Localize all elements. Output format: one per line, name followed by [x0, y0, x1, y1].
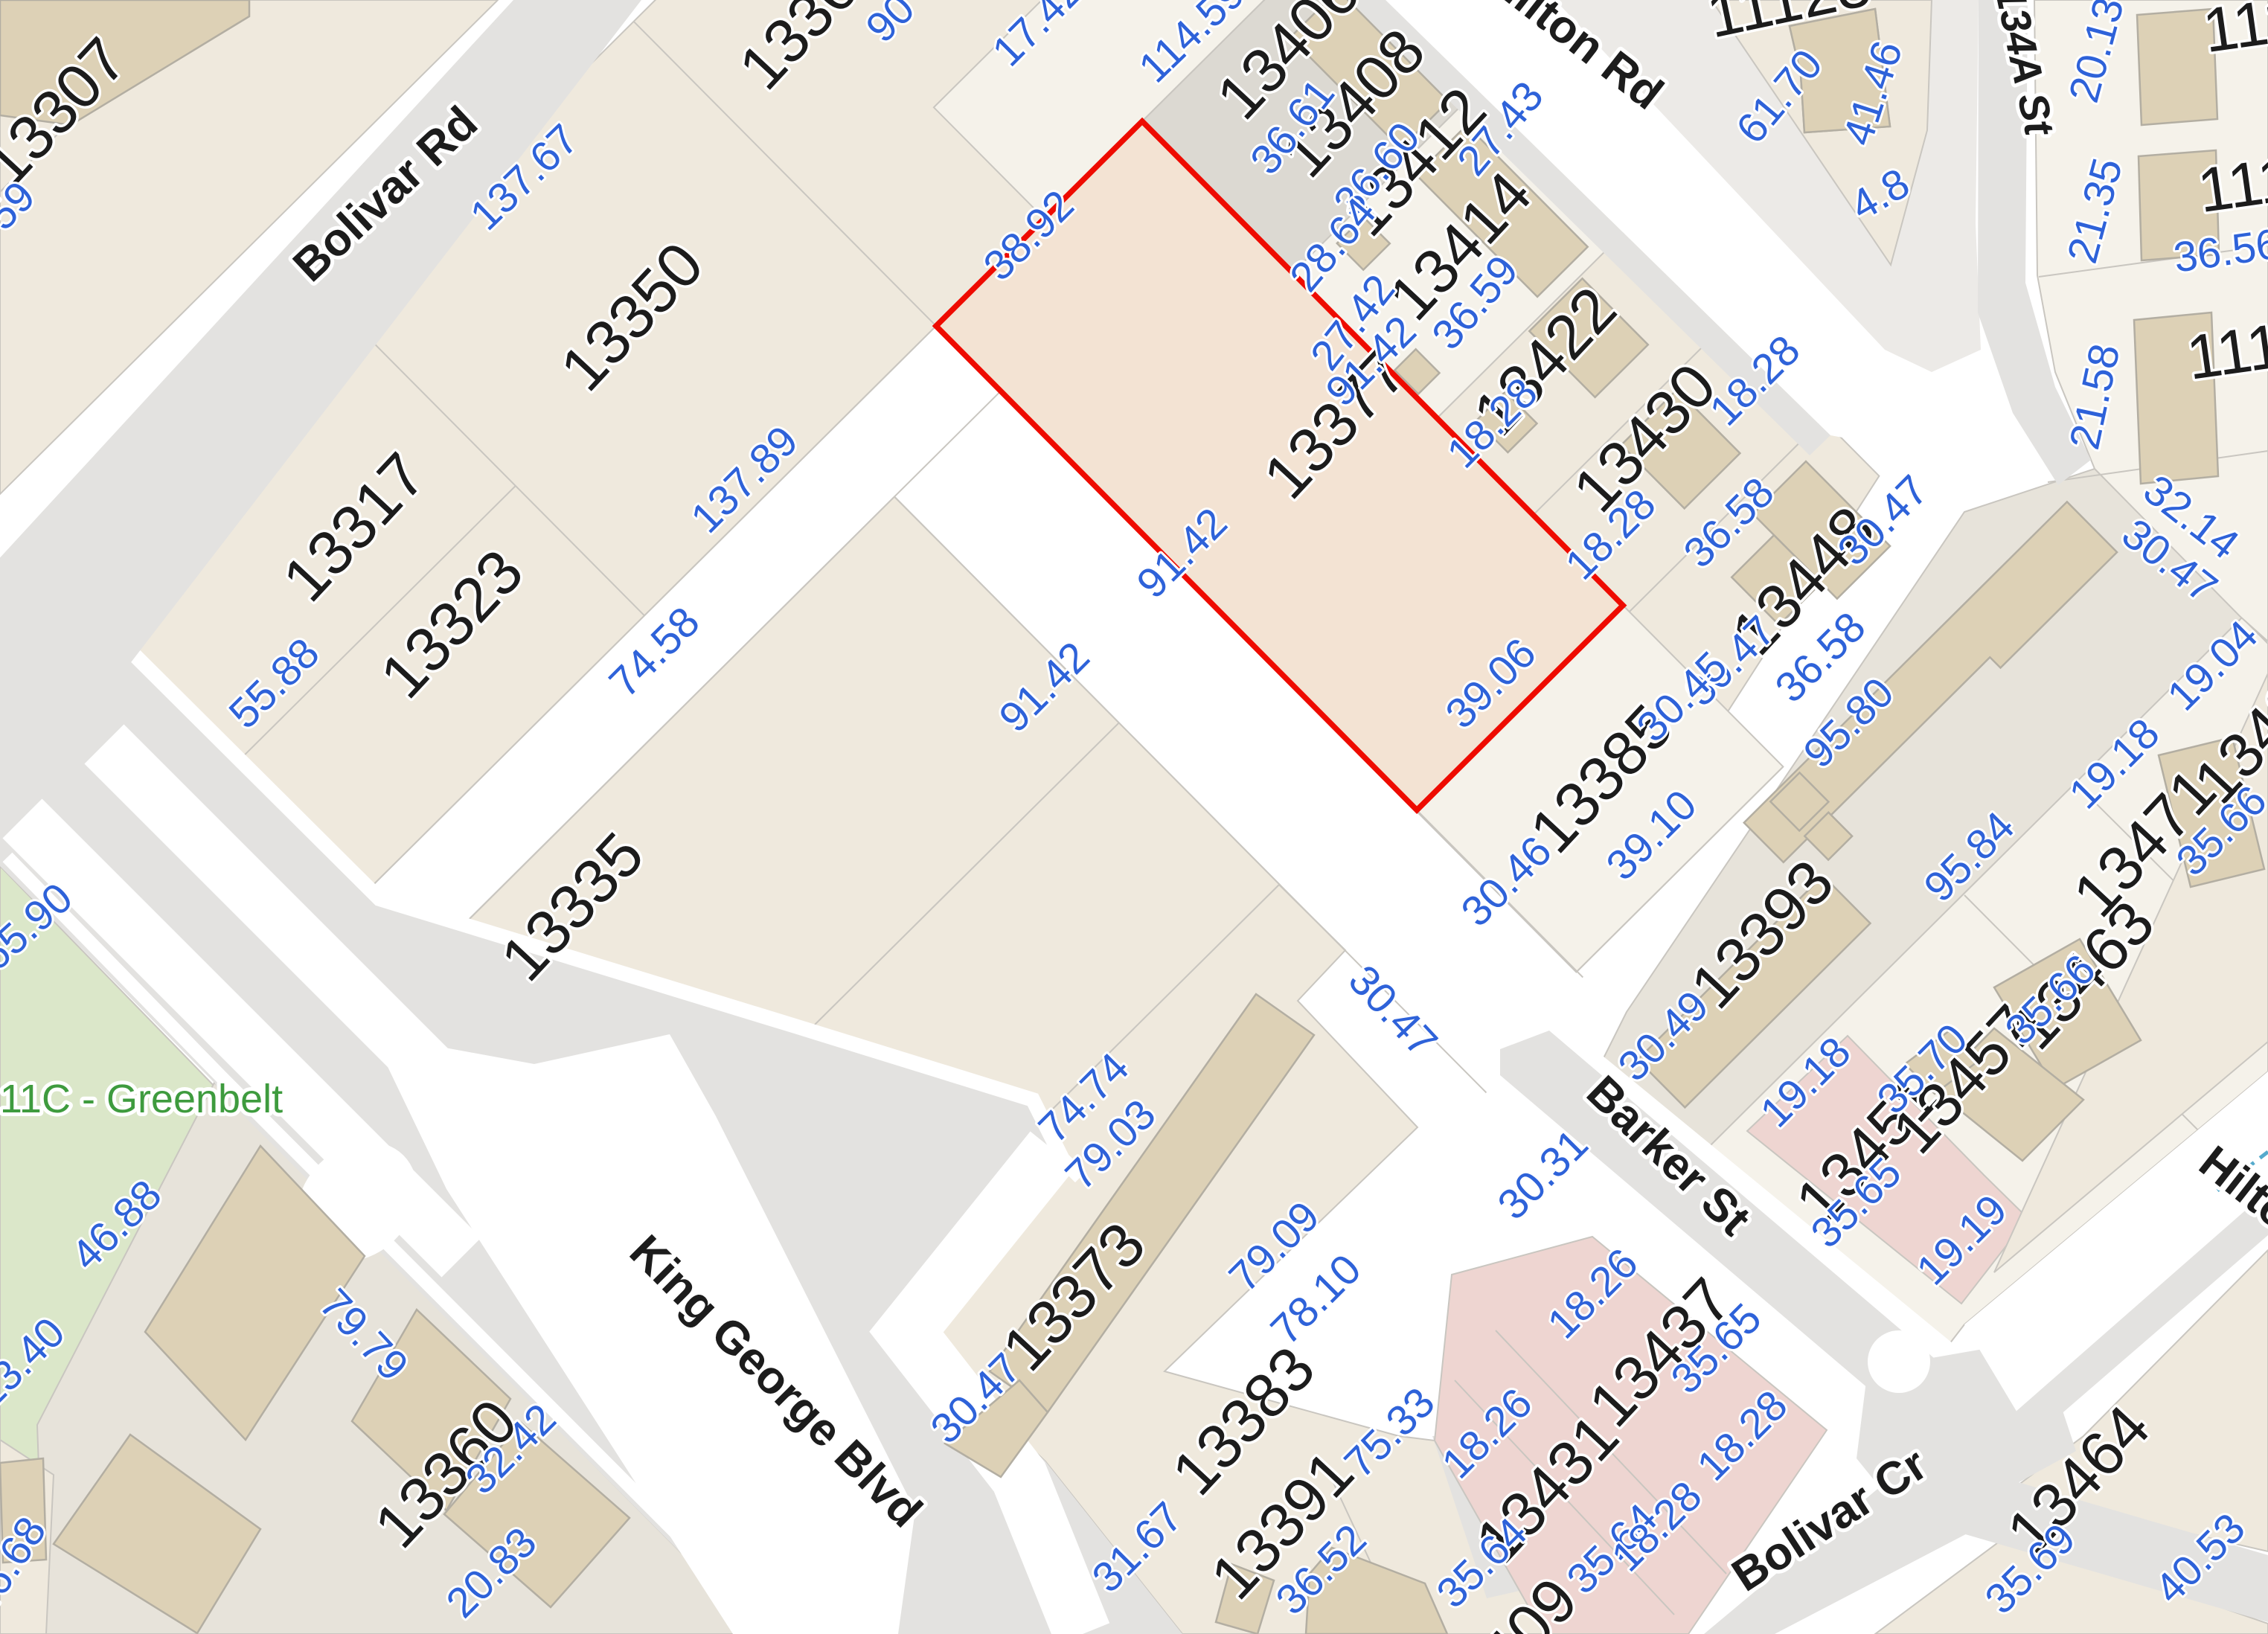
svg-text:11C - Greenbelt: 11C - Greenbelt: [0, 1077, 283, 1121]
svg-text:11132: 11132: [2199, 0, 2268, 65]
